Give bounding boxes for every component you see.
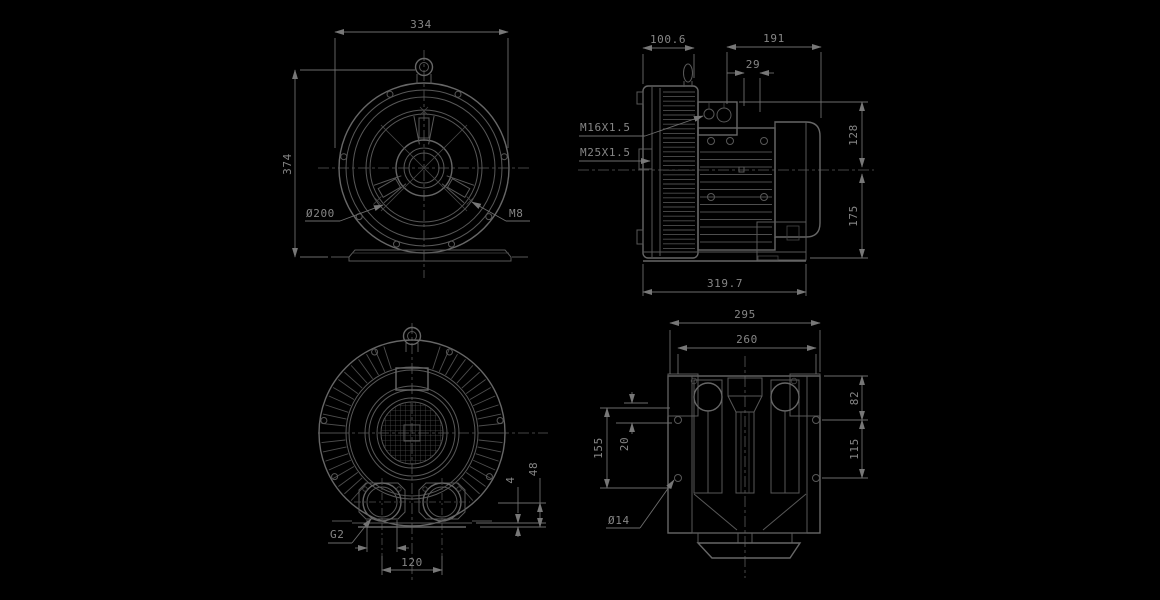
front-view: 334 374 Ø200 M8	[281, 18, 532, 278]
technical-drawing-page: 334 374 Ø200 M8	[0, 0, 1160, 600]
gland-offset-value: 29	[746, 58, 760, 71]
fan-cover-top	[692, 494, 807, 558]
port-height-dimension: 48	[498, 462, 546, 527]
bolt-circle-callout: Ø200	[305, 205, 383, 221]
gland-large-value: M25X1.5	[580, 146, 631, 159]
overall-length-dimension: 319.7	[643, 264, 806, 296]
mounting-holes	[675, 417, 820, 482]
below-axis-value: 175	[847, 205, 860, 227]
front-feet	[331, 250, 528, 261]
front-height-dimension: 374	[281, 70, 415, 257]
housing-depth-value: 100.6	[650, 33, 686, 46]
front-height-value: 374	[281, 153, 294, 175]
bolt-circle-value: Ø200	[306, 207, 335, 220]
housing-depth-dimension: 100.6	[643, 33, 694, 84]
hole-span-y-value: 115	[848, 438, 861, 460]
top-to-hole-dimension: 82	[822, 376, 868, 420]
left-height-value: 155	[592, 437, 605, 459]
left-height-dimension: 155	[592, 408, 670, 488]
housing-fins	[663, 92, 695, 248]
bolt-thread-value: M8	[509, 207, 523, 220]
top-view: 295 260 82 115 155	[592, 308, 868, 578]
eyebolt-side	[684, 64, 693, 82]
rear-view: G2 120 4 48	[318, 323, 548, 582]
motor-length-dimension: 191	[727, 32, 821, 118]
center-tower-top	[728, 378, 762, 493]
foot-pad-dimension: 4	[476, 476, 546, 537]
side-view: 100.6 191 29 128 175	[578, 32, 874, 296]
hole-span-y-dimension: 115	[822, 420, 868, 478]
blower-housing-side	[643, 86, 698, 258]
front-width-value: 334	[410, 18, 432, 31]
hole-dia-value: Ø14	[608, 514, 630, 527]
shaft-center-mark	[739, 167, 744, 172]
port-thread-callout: G2	[328, 519, 409, 552]
gland-offset-dimension: 29	[727, 58, 774, 112]
below-axis-dimension: 175	[810, 174, 868, 258]
foot-pad-value: 4	[504, 476, 517, 483]
motor-frame	[698, 128, 775, 250]
motor-bolts	[708, 138, 768, 201]
top-to-hole-value: 82	[848, 391, 861, 405]
top-body-outline	[668, 376, 820, 533]
port-height-value: 48	[527, 462, 540, 476]
drain-boss	[639, 149, 652, 169]
cable-gland-large	[717, 108, 731, 122]
gland-small-value: M16X1.5	[580, 121, 631, 134]
port-spacing-value: 120	[401, 556, 423, 569]
fan-guard-mesh	[381, 402, 443, 464]
motor-end-bell	[775, 122, 820, 237]
above-axis-dimension: 128	[739, 102, 868, 167]
silencer-right-top	[771, 380, 799, 493]
overall-length-value: 319.7	[707, 277, 743, 290]
port-thread-value: G2	[330, 528, 344, 541]
hole-dia-callout: Ø14	[606, 480, 674, 528]
overall-width-value: 295	[734, 308, 756, 321]
cable-gland-small	[704, 109, 714, 119]
offset-dimension: 20	[616, 392, 672, 451]
above-axis-value: 128	[847, 124, 860, 146]
technical-drawing-canvas: 334 374 Ø200 M8	[0, 0, 1160, 600]
motor-ribs	[700, 152, 772, 242]
hole-span-x-dimension: 260	[678, 333, 816, 374]
hole-span-x-value: 260	[736, 333, 758, 346]
offset-value: 20	[618, 437, 631, 451]
motor-length-value: 191	[763, 32, 785, 45]
